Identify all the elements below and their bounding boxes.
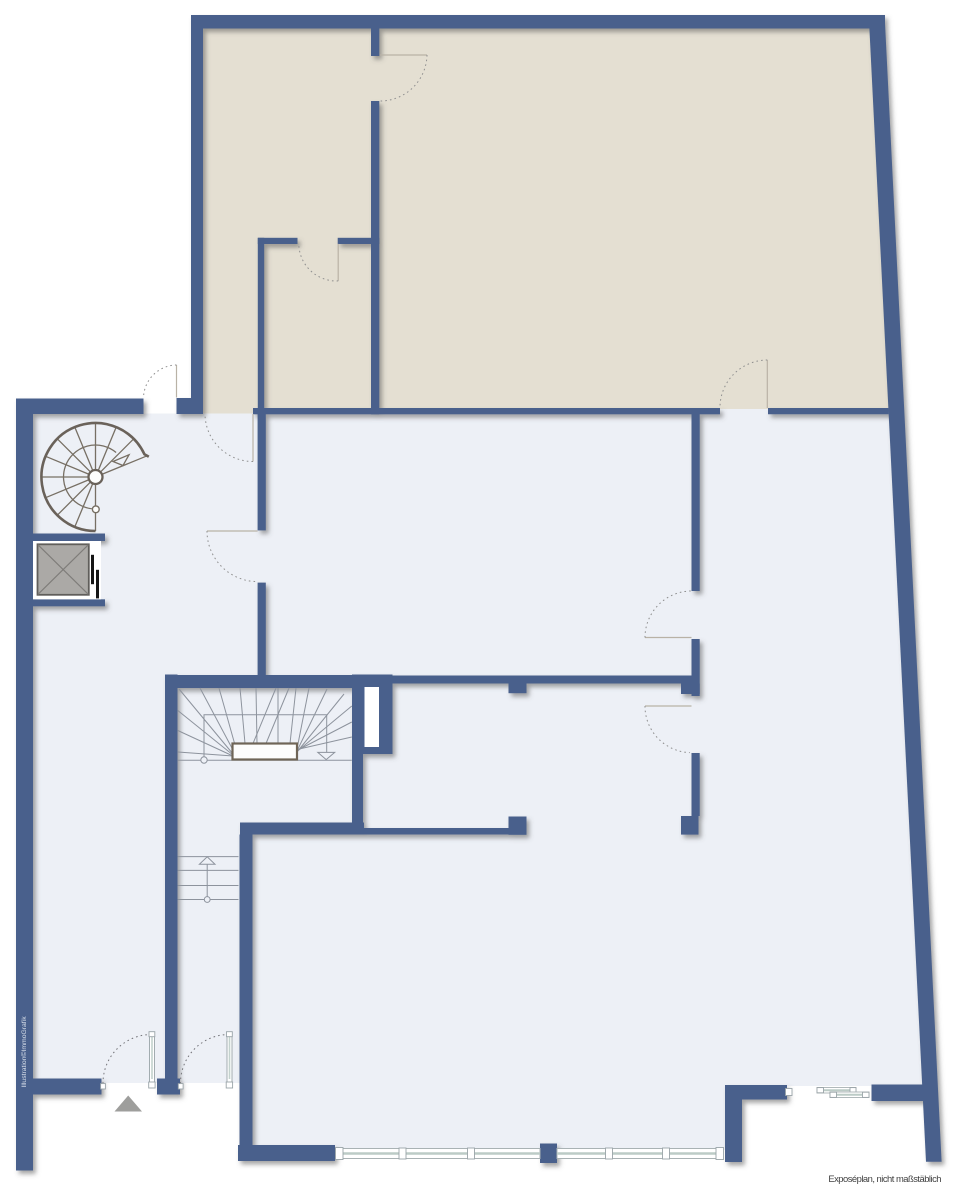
svg-text:Exposéplan, nicht maßstäblich: Exposéplan, nicht maßstäblich xyxy=(828,1173,941,1184)
svg-text:Illustration©ImmoGrafik: Illustration©ImmoGrafik xyxy=(20,1016,28,1088)
